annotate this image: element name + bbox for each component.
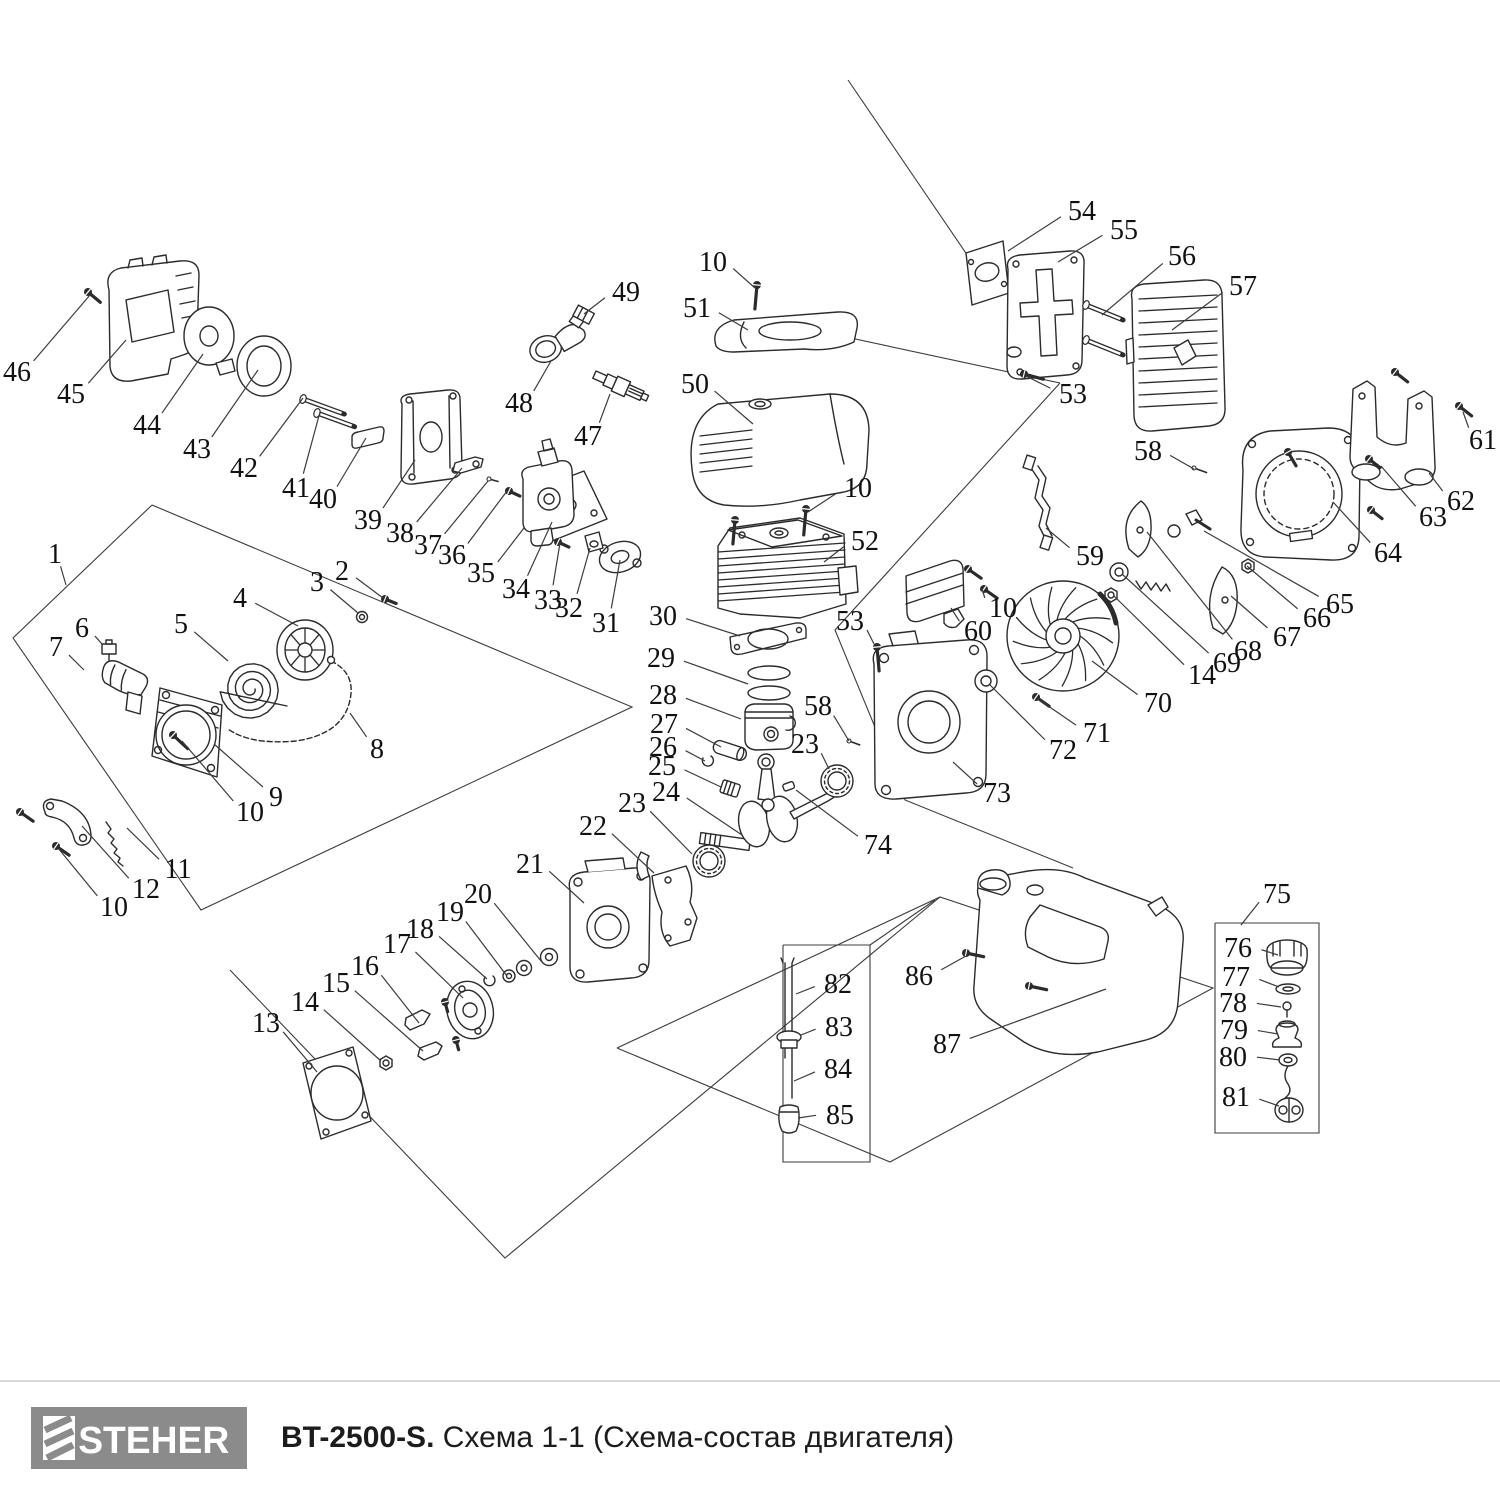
part-ignition-wires-59 — [1023, 455, 1053, 550]
part-grommet-80 — [1279, 1054, 1297, 1066]
part-piston-28 — [745, 704, 795, 750]
part-primer-6 — [102, 640, 116, 660]
part-number-label: 52 — [851, 526, 879, 557]
part-bearing-23-left — [693, 845, 725, 877]
part-number-label: 20 — [464, 879, 492, 910]
part-number-label: 32 — [555, 593, 583, 624]
part-spark-plug-47 — [591, 367, 650, 405]
model-name: BT-2500-S. — [281, 1421, 434, 1454]
part-number-label: 41 — [282, 473, 310, 504]
part-gasket-22 — [652, 866, 697, 946]
part-muffler-55 — [1007, 251, 1084, 379]
part-number-label: 12 — [132, 874, 160, 905]
part-rope-pulley-4 — [277, 620, 333, 680]
part-flange-17 — [441, 976, 500, 1043]
part-number-label: 57 — [1229, 271, 1257, 302]
part-clutch-spring — [1136, 581, 1170, 591]
part-number-label: 72 — [1049, 735, 1077, 766]
part-cap-washer-77 — [1276, 984, 1300, 994]
part-number-label: 24 — [652, 777, 680, 808]
part-number-label: 43 — [183, 434, 211, 465]
part-valve-78 — [1283, 1002, 1291, 1017]
part-number-label: 10 — [699, 247, 727, 278]
part-number-label: 49 — [612, 277, 640, 308]
part-number-label: 81 — [1222, 1082, 1250, 1113]
part-fuel-tank-87 — [974, 870, 1183, 1055]
part-number-label: 19 — [436, 897, 464, 928]
part-washer-20a — [517, 961, 532, 976]
part-recoil-spring-5 — [220, 664, 287, 718]
part-gasket-33 — [585, 532, 603, 552]
part-piston-rings-29 — [748, 666, 790, 700]
part-nut-14b — [380, 1056, 392, 1070]
part-number-label: 64 — [1374, 538, 1402, 569]
part-number-label: 62 — [1447, 486, 1475, 517]
part-number-label: 31 — [592, 608, 620, 639]
footer: STEHER BT-2500-S. Схема 1-1 (Схема-соста… — [0, 1398, 1500, 1478]
part-number-label: 39 — [354, 505, 382, 536]
part-number-label: 1 — [48, 539, 62, 570]
screw-icon — [52, 842, 69, 855]
part-number-label: 14 — [1188, 660, 1216, 691]
part-base-gasket-30 — [730, 623, 806, 655]
part-number-label: 23 — [791, 729, 819, 760]
steher-logo-mark: STEHER — [41, 1414, 237, 1462]
part-filter-ring-43 — [237, 336, 291, 396]
part-retainer-81 — [1275, 1066, 1303, 1122]
part-clutch-bolt-65 — [1168, 510, 1210, 537]
part-number-label: 46 — [3, 357, 31, 388]
part-number-label: 58 — [1134, 436, 1162, 467]
brand-text: STEHER — [78, 1419, 229, 1461]
part-number-label: 84 — [824, 1054, 852, 1085]
part-number-label: 69 — [1213, 648, 1241, 679]
part-number-label: 28 — [649, 680, 677, 711]
part-bearing-23-right — [821, 765, 853, 797]
part-number-label: 10 — [844, 473, 872, 504]
part-number-label: 23 — [618, 788, 646, 819]
part-number-label: 58 — [804, 691, 832, 722]
part-number-label: 67 — [1273, 622, 1301, 653]
part-number-label: 40 — [309, 484, 337, 515]
part-number-label: 53 — [1059, 379, 1087, 410]
part-fuel-line-82-84 — [777, 958, 801, 1098]
part-number-label: 36 — [438, 540, 466, 571]
part-number-label: 59 — [1076, 541, 1104, 572]
part-spring-11 — [106, 822, 123, 866]
screw-icon — [299, 394, 345, 414]
screw-icon — [753, 281, 761, 309]
part-number-label: 18 — [406, 914, 434, 945]
part-number-label: 50 — [681, 369, 709, 400]
part-square-gasket-13 — [303, 1047, 371, 1139]
part-bracket-62 — [1350, 381, 1435, 490]
part-number-label: 45 — [57, 379, 85, 410]
part-lever-16 — [405, 1010, 430, 1030]
part-number-label: 55 — [1110, 215, 1138, 246]
screw-icon — [381, 595, 396, 603]
part-connecting-rod — [758, 754, 775, 801]
part-number-label: 74 — [864, 830, 892, 861]
part-number-label: 4 — [233, 583, 247, 614]
part-number-label: 10 — [100, 892, 128, 923]
part-number-label: 56 — [1168, 241, 1196, 272]
part-fuel-filter-85 — [779, 1105, 799, 1133]
part-number-label: 6 — [75, 613, 89, 644]
part-filter-plate-44 — [184, 307, 235, 375]
part-number-label: 85 — [826, 1100, 854, 1131]
screw-icon — [964, 565, 981, 578]
part-number-label: 16 — [351, 951, 379, 982]
part-number-label: 11 — [165, 854, 192, 885]
footer-divider — [0, 1380, 1500, 1382]
part-number-label: 86 — [905, 961, 933, 992]
part-number-label: 70 — [1144, 688, 1172, 719]
screw-icon — [16, 808, 33, 821]
part-number-label: 60 — [964, 616, 992, 647]
part-number-label: 48 — [505, 388, 533, 419]
part-number-label: 42 — [230, 453, 258, 484]
part-choke-rod-40 — [352, 427, 384, 448]
part-number-label: 44 — [133, 410, 161, 441]
part-number-label: 15 — [322, 968, 350, 999]
part-cylinder-52 — [718, 518, 858, 618]
part-number-label: 63 — [1419, 502, 1447, 533]
part-number-label: 14 — [291, 987, 319, 1018]
part-washer-19 — [503, 970, 515, 982]
part-wrist-pin-27 — [712, 739, 748, 762]
part-number-label: 22 — [579, 811, 607, 842]
screw-icon — [84, 288, 100, 302]
part-number-label: 82 — [824, 969, 852, 1000]
part-needle-bearing-25 — [720, 780, 741, 798]
part-number-label: 66 — [1303, 603, 1331, 634]
part-number-label: 10 — [236, 797, 264, 828]
part-flywheel-70 — [1007, 581, 1119, 691]
part-fan-cover-64 — [1241, 428, 1360, 560]
part-washer-3 — [357, 612, 368, 623]
part-woodruff-key-74 — [782, 781, 795, 791]
part-number-label: 7 — [49, 632, 63, 663]
part-clutch-shoe-68 — [1126, 501, 1151, 557]
scheme-caption: BT-2500-S. Схема 1-1 (Схема-состав двига… — [281, 1421, 954, 1455]
part-intake-flange-31 — [595, 536, 644, 578]
part-muffler-gasket-54 — [966, 241, 1009, 305]
part-number-label: 21 — [516, 849, 544, 880]
part-number-label: 73 — [983, 778, 1011, 809]
part-number-label: 5 — [174, 609, 188, 640]
part-number-label: 13 — [252, 1008, 280, 1039]
part-number-label: 87 — [933, 1029, 961, 1060]
part-clutch-shoe-67 — [1210, 567, 1238, 634]
part-number-label: 38 — [386, 518, 414, 549]
part-number-label: 3 — [310, 567, 324, 598]
brand-logo: STEHER — [31, 1407, 247, 1469]
part-number-label: 53 — [836, 606, 864, 637]
part-washer-69 — [1110, 563, 1128, 581]
part-lever-15 — [418, 1042, 442, 1060]
part-number-label: 47 — [574, 421, 602, 452]
part-number-label: 51 — [683, 293, 711, 324]
scheme-name: Схема 1-1 (Схема-состав двигателя) — [443, 1421, 954, 1454]
part-number-label: 54 — [1068, 196, 1096, 227]
schematic-page: 4645444342414039383736353433323114948471… — [0, 0, 1500, 1500]
part-ignition-coil-60 — [906, 560, 964, 627]
part-number-label: 61 — [1469, 425, 1497, 456]
part-number-label: 80 — [1219, 1042, 1247, 1073]
part-washer-20b — [541, 949, 558, 966]
part-number-label: 76 — [1224, 933, 1252, 964]
part-number-label: 8 — [370, 734, 384, 765]
part-number-label: 2 — [335, 556, 349, 587]
screw-icon — [1082, 335, 1124, 355]
part-number-label: 35 — [467, 558, 495, 589]
screw-icon — [487, 477, 499, 482]
screw-icon — [1367, 506, 1382, 519]
screw-icon — [1391, 368, 1408, 382]
part-number-label: 29 — [647, 643, 675, 674]
screw-icon — [441, 998, 449, 1012]
screw-icon — [554, 538, 569, 547]
screw-icon — [452, 1036, 460, 1050]
part-number-label: 71 — [1083, 718, 1111, 749]
screw-icon — [1192, 466, 1207, 473]
part-air-filter-cover-45 — [108, 255, 199, 381]
part-number-label: 34 — [502, 574, 530, 605]
part-number-label: 9 — [269, 782, 283, 813]
part-number-label: 30 — [649, 601, 677, 632]
part-fuel-cap-76 — [1267, 940, 1307, 975]
exploded-view-diagram: 4645444342414039383736353433323114948471… — [0, 0, 1500, 1378]
part-starter-housing-9 — [152, 688, 222, 777]
part-number-label: 75 — [1263, 879, 1291, 910]
part-starter-handle-7 — [98, 658, 151, 714]
part-muffler-cover-57 — [1126, 280, 1225, 431]
part-number-label: 10 — [989, 593, 1017, 624]
part-crankcase-right-73 — [873, 631, 987, 799]
part-engine-cover-50 — [691, 394, 869, 506]
part-number-label: 83 — [825, 1012, 853, 1043]
part-bracket-12 — [43, 799, 91, 845]
part-crankcase-left-21 — [569, 858, 650, 982]
part-handle-cover-51 — [715, 312, 858, 352]
